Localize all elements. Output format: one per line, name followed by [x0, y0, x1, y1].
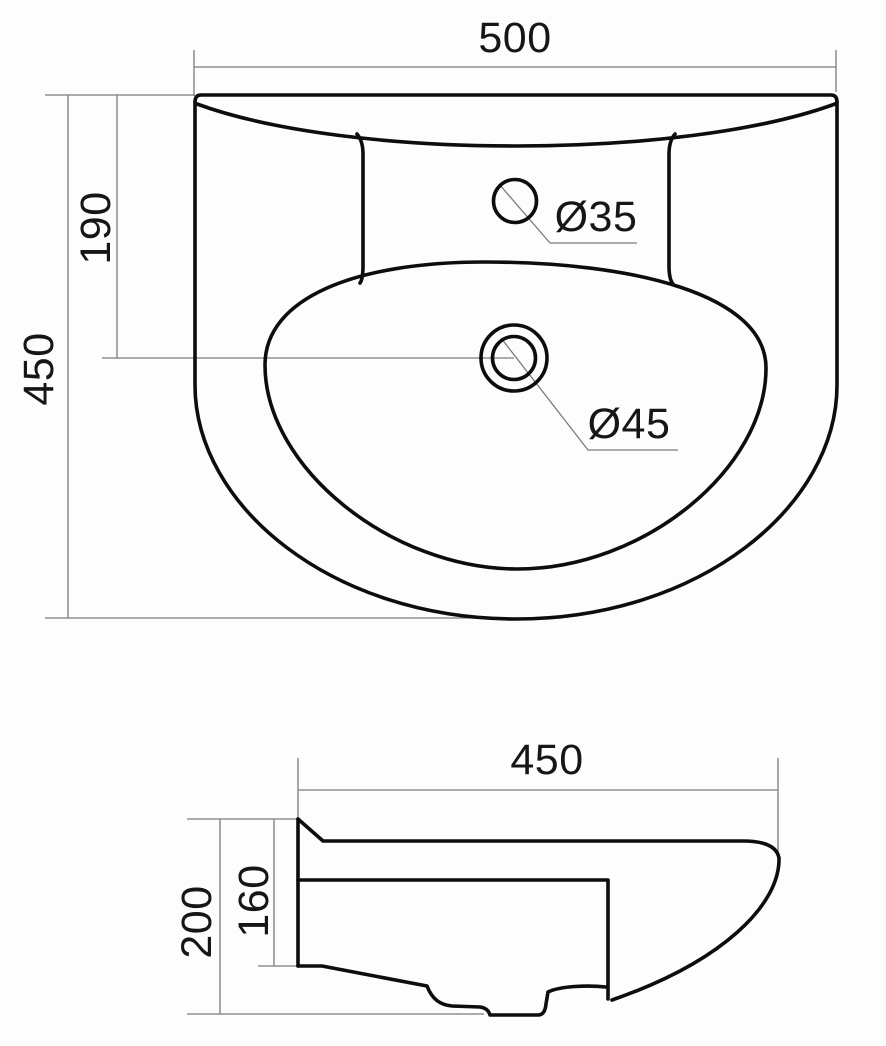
top-view: 500 450 190 Ø35 Ø45	[15, 14, 837, 619]
side-inner-height-label: 160	[230, 864, 278, 937]
faucet-hole	[494, 180, 537, 223]
profile-top-edge	[298, 819, 779, 1000]
drain-offset-label: 190	[72, 191, 120, 264]
top-width-label: 500	[478, 14, 551, 62]
top-height-label: 450	[15, 332, 63, 405]
left-ledge-line	[357, 134, 363, 283]
side-height-label: 200	[173, 885, 221, 958]
profile-underside	[298, 966, 606, 1015]
drain-hole-label: Ø45	[588, 400, 671, 448]
top-view-back-edge	[197, 104, 835, 146]
drawing-svg: 500 450 190 Ø35 Ø45 4	[0, 0, 886, 1046]
bowl-outline	[265, 262, 766, 569]
faucet-hole-label: Ø35	[555, 193, 638, 241]
right-ledge-line	[669, 134, 675, 284]
side-view: 450 200 160	[173, 736, 779, 1015]
washbasin-technical-drawing: 500 450 190 Ø35 Ø45 4	[0, 0, 886, 1046]
profile-inner-box	[298, 880, 608, 999]
side-depth-label: 450	[510, 736, 583, 784]
